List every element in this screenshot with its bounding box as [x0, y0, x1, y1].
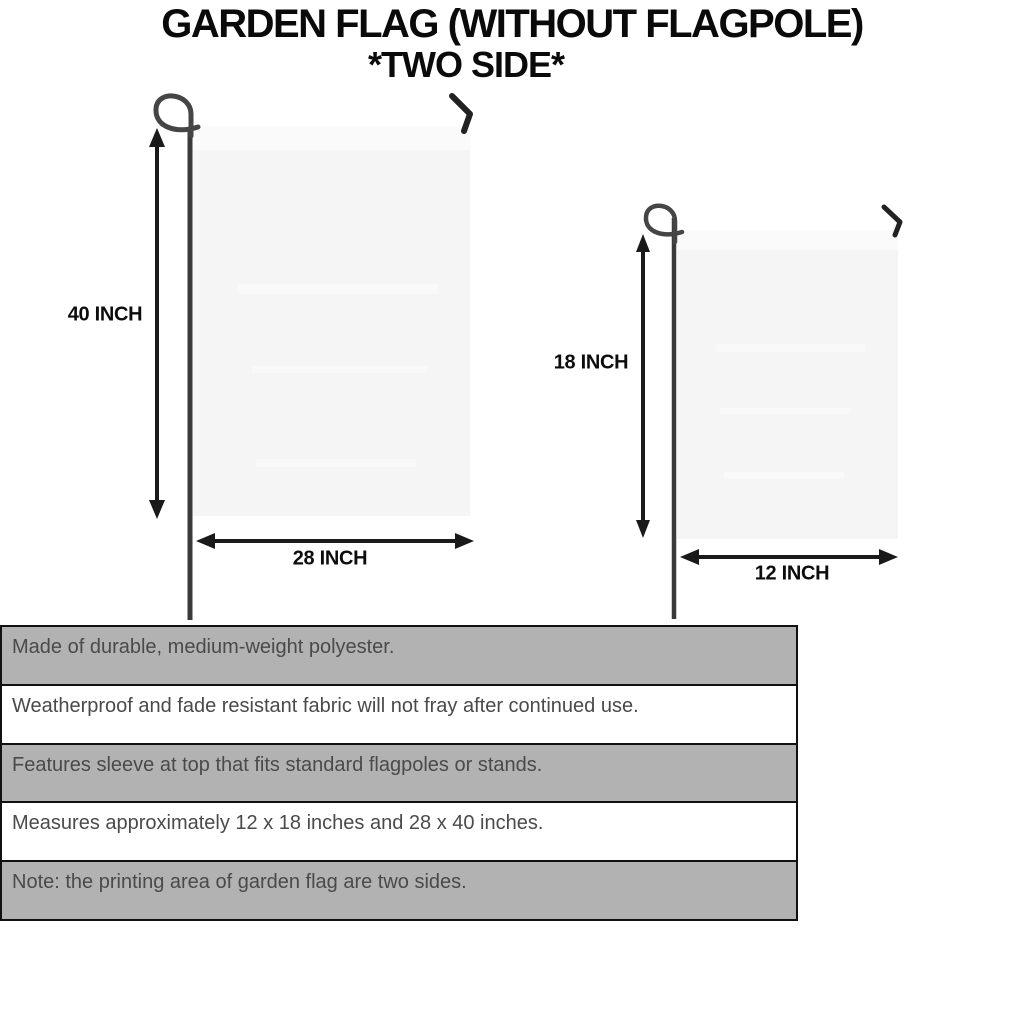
small-height-arrow — [636, 234, 650, 538]
large-flag-width-label: 28 INCH — [293, 548, 368, 571]
large-flag-group — [149, 96, 474, 620]
spec-text: Note: the printing area of garden flag a… — [12, 871, 467, 893]
large-flag-crease — [252, 366, 427, 373]
large-pole-hook-icon — [452, 96, 470, 131]
table-row: Made of durable, medium-weight polyester… — [2, 627, 796, 684]
small-flagpole-loop-icon — [646, 206, 682, 242]
large-height-arrow — [149, 128, 165, 519]
table-row: Note: the printing area of garden flag a… — [2, 860, 796, 919]
small-flag-width-label: 12 INCH — [755, 563, 830, 586]
table-row: Measures approximately 12 x 18 inches an… — [2, 801, 796, 860]
large-flag-sleeve — [192, 126, 470, 150]
large-flag-crease — [256, 459, 416, 467]
small-flag-crease — [715, 344, 865, 352]
large-flagpole-loop-icon — [156, 96, 198, 136]
table-row: Weatherproof and fade resistant fabric w… — [2, 684, 796, 743]
spec-text: Measures approximately 12 x 18 inches an… — [12, 812, 543, 834]
spec-text: Made of durable, medium-weight polyester… — [12, 636, 394, 658]
small-flag-crease — [724, 472, 844, 479]
garden-flag-size-chart: GARDEN FLAG (WITHOUT FLAGPOLE) *TWO SIDE… — [0, 0, 1024, 1024]
spec-text: Features sleeve at top that fits standar… — [12, 754, 542, 776]
small-flag-sleeve — [677, 230, 898, 250]
spec-text: Weatherproof and fade resistant fabric w… — [12, 695, 639, 717]
large-flag-crease — [238, 284, 438, 294]
small-flag-height-label: 18 INCH — [554, 352, 629, 375]
large-flag-panel — [192, 126, 470, 516]
small-flag-panel — [677, 230, 898, 539]
spec-table: Made of durable, medium-weight polyester… — [0, 625, 798, 921]
small-flag-crease — [720, 408, 850, 414]
table-row: Features sleeve at top that fits standar… — [2, 743, 796, 802]
large-flag-height-label: 40 INCH — [68, 304, 143, 327]
small-flag-group — [636, 206, 900, 619]
